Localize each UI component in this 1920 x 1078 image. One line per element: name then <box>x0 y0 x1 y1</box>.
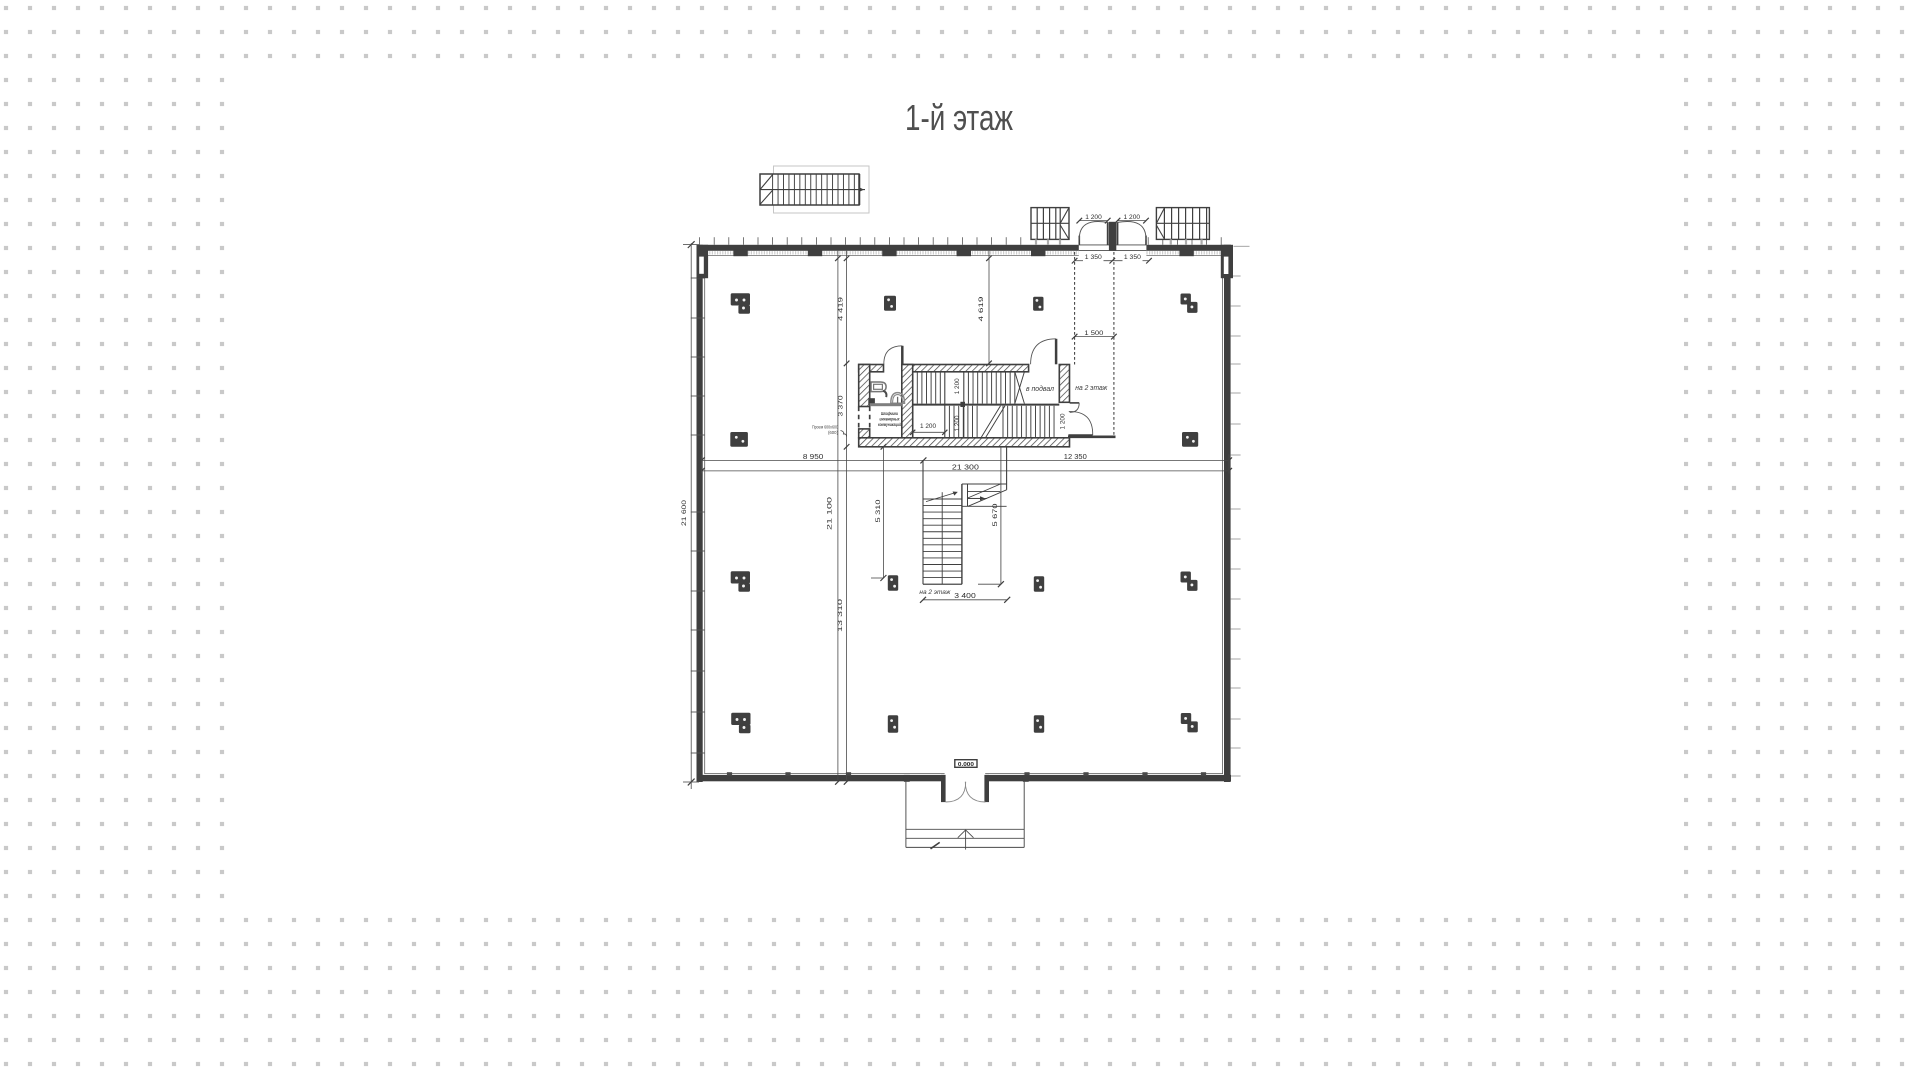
svg-text:1 200: 1 200 <box>954 415 961 431</box>
svg-text:21 600: 21 600 <box>681 500 688 526</box>
svg-text:1 350: 1 350 <box>1124 254 1141 261</box>
svg-text:21 100: 21 100 <box>827 496 834 530</box>
svg-text:5 670: 5 670 <box>992 503 999 526</box>
svg-text:(600): (600) <box>828 430 838 435</box>
svg-text:на 2 этаж: на 2 этаж <box>919 589 951 596</box>
svg-text:коммуникаций: коммуникаций <box>878 421 901 427</box>
svg-text:в подвал: в подвал <box>1026 385 1054 393</box>
svg-text:на 2 этаж: на 2 этаж <box>1075 385 1108 392</box>
svg-text:1 200: 1 200 <box>920 423 936 430</box>
svg-text:1 350: 1 350 <box>1085 254 1102 261</box>
svg-text:3 400: 3 400 <box>954 593 976 600</box>
svg-text:1 500: 1 500 <box>1084 330 1103 337</box>
svg-text:1 200: 1 200 <box>1124 214 1141 221</box>
svg-text:0.000: 0.000 <box>958 762 974 768</box>
svg-text:1-й этаж: 1-й этаж <box>905 97 1013 138</box>
svg-text:Шкафчики: Шкафчики <box>881 410 898 416</box>
svg-text:12 350: 12 350 <box>1064 454 1087 461</box>
svg-text:1 200: 1 200 <box>1060 413 1067 429</box>
svg-text:5 310: 5 310 <box>875 499 882 522</box>
svg-text:13 310: 13 310 <box>837 598 844 632</box>
svg-text:4 419: 4 419 <box>837 297 844 321</box>
svg-text:инженерных: инженерных <box>880 416 900 421</box>
svg-text:21 300: 21 300 <box>952 464 979 471</box>
svg-text:8 950: 8 950 <box>803 454 824 461</box>
svg-text:1 200: 1 200 <box>1085 214 1102 221</box>
svg-text:1 200: 1 200 <box>954 378 961 394</box>
svg-text:3 370: 3 370 <box>838 395 845 416</box>
svg-text:4 619: 4 619 <box>978 296 985 321</box>
